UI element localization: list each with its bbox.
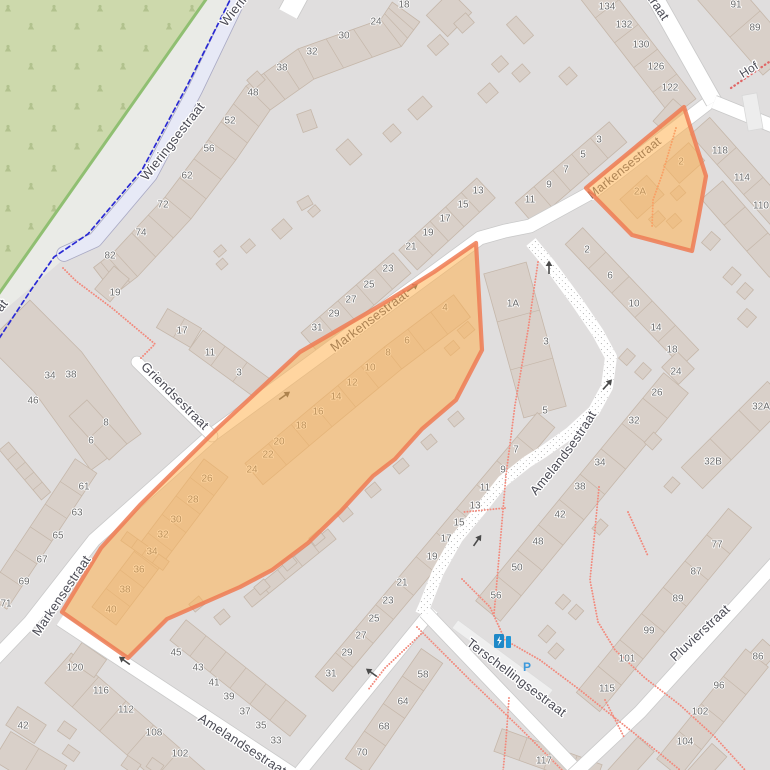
svg-text:15: 15 xyxy=(453,518,465,529)
svg-text:11: 11 xyxy=(205,348,216,359)
svg-text:117: 117 xyxy=(536,756,552,767)
svg-text:29: 29 xyxy=(328,309,340,320)
svg-text:18: 18 xyxy=(666,345,678,356)
svg-text:24: 24 xyxy=(670,367,682,378)
svg-text:13: 13 xyxy=(469,501,481,512)
svg-text:52: 52 xyxy=(224,116,236,127)
svg-text:115: 115 xyxy=(599,684,615,695)
svg-text:89: 89 xyxy=(749,23,761,34)
svg-text:64: 64 xyxy=(397,697,409,708)
svg-text:134: 134 xyxy=(599,2,616,13)
svg-text:3: 3 xyxy=(236,368,242,379)
svg-text:104: 104 xyxy=(677,737,694,748)
svg-text:33: 33 xyxy=(270,736,282,747)
svg-text:71: 71 xyxy=(0,599,12,610)
svg-text:5: 5 xyxy=(542,406,548,417)
svg-text:32: 32 xyxy=(306,47,318,58)
svg-text:118: 118 xyxy=(712,146,728,157)
svg-text:102: 102 xyxy=(692,707,709,718)
svg-text:23: 23 xyxy=(382,596,394,607)
svg-text:67: 67 xyxy=(36,555,48,566)
svg-text:120: 120 xyxy=(67,663,84,674)
svg-text:21: 21 xyxy=(396,578,408,589)
svg-text:70: 70 xyxy=(356,748,368,759)
svg-text:38: 38 xyxy=(65,370,77,381)
svg-text:102: 102 xyxy=(172,749,189,760)
svg-text:3: 3 xyxy=(543,337,549,348)
svg-text:26: 26 xyxy=(651,388,663,399)
svg-text:7: 7 xyxy=(513,445,519,456)
svg-text:11: 11 xyxy=(480,483,491,494)
svg-text:72: 72 xyxy=(157,200,169,211)
svg-text:99: 99 xyxy=(643,626,655,637)
svg-text:46: 46 xyxy=(27,396,39,407)
svg-text:82: 82 xyxy=(104,251,116,262)
svg-text:32B: 32B xyxy=(704,457,722,468)
svg-text:P: P xyxy=(523,660,531,674)
svg-text:10: 10 xyxy=(628,299,640,310)
svg-text:8: 8 xyxy=(103,418,109,429)
svg-text:77: 77 xyxy=(711,540,723,551)
svg-text:38: 38 xyxy=(574,482,586,493)
svg-text:110: 110 xyxy=(753,201,769,212)
svg-text:25: 25 xyxy=(363,280,375,291)
svg-text:126: 126 xyxy=(648,62,665,73)
svg-text:18: 18 xyxy=(398,0,410,11)
svg-text:42: 42 xyxy=(17,721,29,732)
svg-text:87: 87 xyxy=(690,567,702,578)
svg-text:30: 30 xyxy=(338,31,350,42)
svg-text:17: 17 xyxy=(440,534,452,545)
svg-text:11: 11 xyxy=(525,195,536,206)
svg-text:32: 32 xyxy=(628,416,640,427)
svg-text:68: 68 xyxy=(378,722,390,733)
svg-text:1A: 1A xyxy=(507,299,520,310)
svg-text:58: 58 xyxy=(417,670,429,681)
svg-text:56: 56 xyxy=(203,144,215,155)
svg-text:61: 61 xyxy=(78,482,90,493)
svg-text:86: 86 xyxy=(752,652,764,663)
svg-text:7: 7 xyxy=(563,165,569,176)
svg-text:130: 130 xyxy=(633,40,650,51)
svg-text:74: 74 xyxy=(135,228,147,239)
svg-text:34: 34 xyxy=(594,458,606,469)
svg-text:122: 122 xyxy=(662,83,679,94)
svg-text:34: 34 xyxy=(44,371,56,382)
svg-text:41: 41 xyxy=(208,678,220,689)
svg-text:50: 50 xyxy=(511,563,523,574)
svg-text:19: 19 xyxy=(422,228,434,239)
svg-text:6: 6 xyxy=(88,436,94,447)
svg-text:91: 91 xyxy=(730,0,742,11)
svg-text:6: 6 xyxy=(607,271,613,282)
svg-text:31: 31 xyxy=(311,323,323,334)
svg-text:19: 19 xyxy=(426,552,438,563)
svg-text:112: 112 xyxy=(118,705,134,716)
svg-text:65: 65 xyxy=(52,531,64,542)
svg-text:13: 13 xyxy=(472,186,484,197)
svg-text:9: 9 xyxy=(500,465,506,476)
svg-text:15: 15 xyxy=(457,200,469,211)
svg-text:9: 9 xyxy=(546,180,552,191)
svg-text:37: 37 xyxy=(239,707,251,718)
svg-text:35: 35 xyxy=(255,721,267,732)
svg-text:38: 38 xyxy=(276,63,288,74)
svg-text:96: 96 xyxy=(713,681,725,692)
svg-text:56: 56 xyxy=(490,591,502,602)
svg-text:42: 42 xyxy=(554,510,566,521)
svg-text:17: 17 xyxy=(176,326,188,337)
svg-text:132: 132 xyxy=(616,20,633,31)
svg-text:89: 89 xyxy=(672,594,684,605)
svg-text:62: 62 xyxy=(181,171,193,182)
svg-text:29: 29 xyxy=(341,648,353,659)
svg-text:48: 48 xyxy=(532,537,544,548)
svg-text:3: 3 xyxy=(596,135,602,146)
svg-text:21: 21 xyxy=(405,242,417,253)
svg-text:116: 116 xyxy=(93,686,109,697)
svg-text:39: 39 xyxy=(223,692,235,703)
svg-text:5: 5 xyxy=(580,150,586,161)
svg-text:27: 27 xyxy=(355,631,367,642)
svg-text:23: 23 xyxy=(382,264,394,275)
svg-text:31: 31 xyxy=(325,669,337,680)
svg-text:19: 19 xyxy=(109,288,121,299)
svg-text:32A: 32A xyxy=(752,402,770,413)
svg-text:48: 48 xyxy=(247,88,259,99)
svg-text:108: 108 xyxy=(146,728,163,739)
svg-text:101: 101 xyxy=(619,654,636,665)
svg-text:14: 14 xyxy=(650,323,662,334)
svg-text:45: 45 xyxy=(170,648,182,659)
svg-text:27: 27 xyxy=(345,295,357,306)
svg-text:114: 114 xyxy=(734,173,750,184)
svg-text:63: 63 xyxy=(71,508,83,519)
svg-text:69: 69 xyxy=(18,577,30,588)
svg-text:2: 2 xyxy=(584,245,590,256)
svg-text:43: 43 xyxy=(192,663,204,674)
svg-text:25: 25 xyxy=(368,614,380,625)
svg-text:17: 17 xyxy=(439,214,451,225)
svg-text:24: 24 xyxy=(370,17,382,28)
